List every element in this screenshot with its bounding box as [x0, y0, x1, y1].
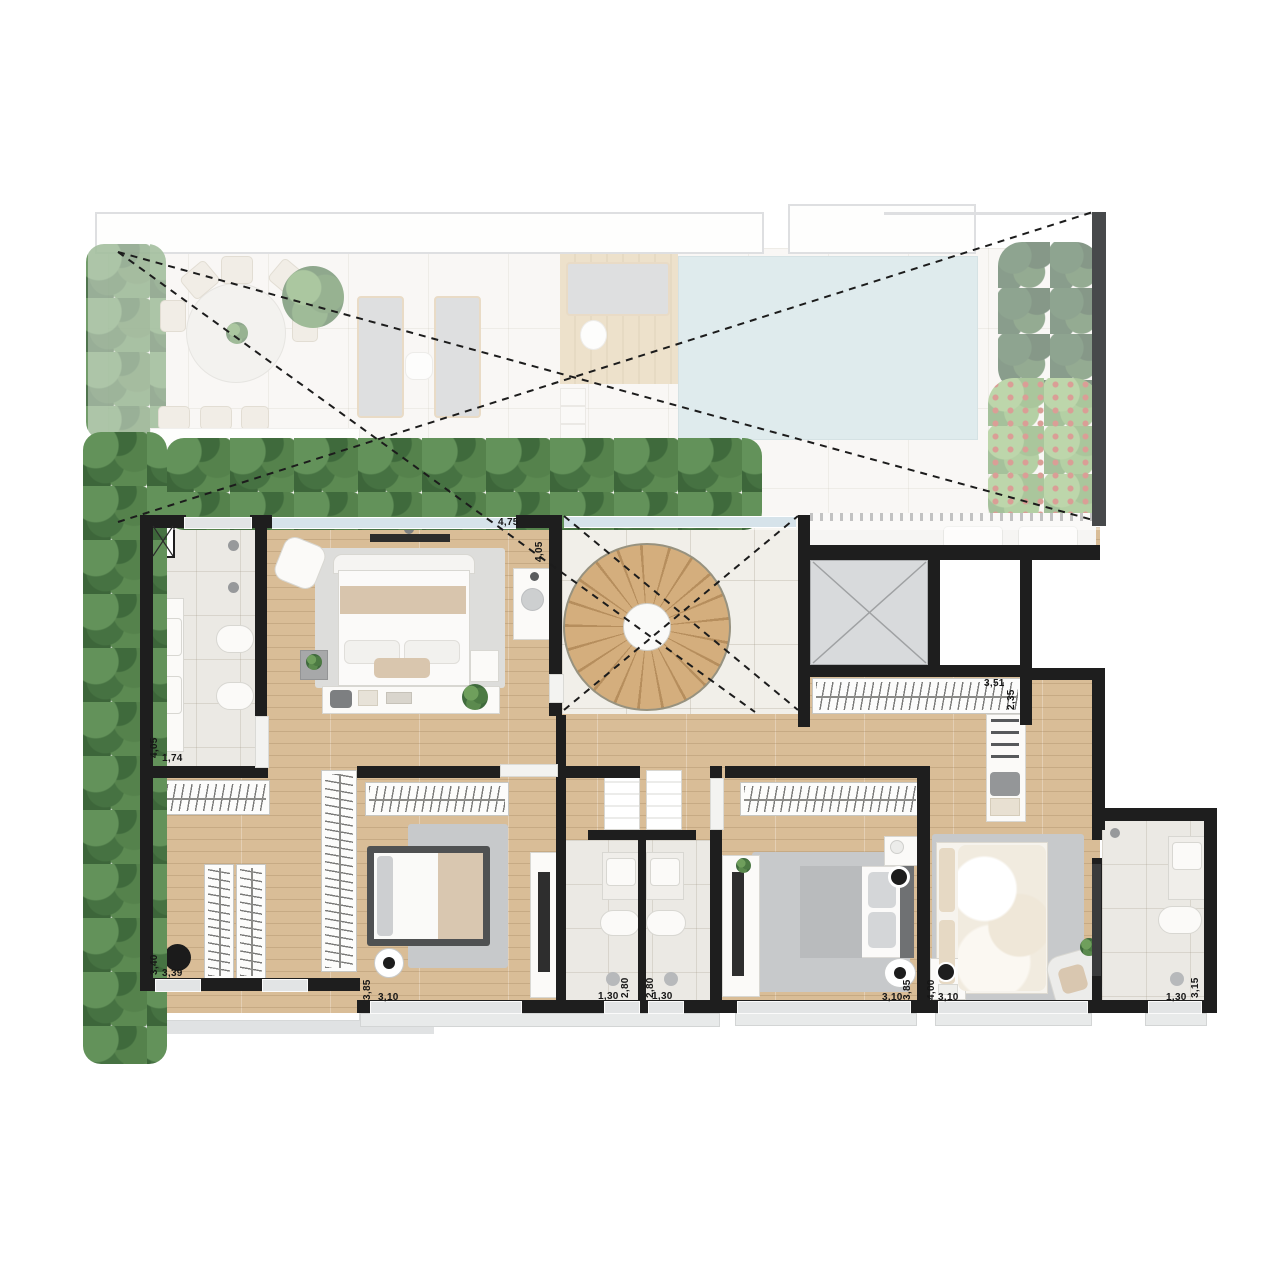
- dim-masterbath-width: 1,74: [162, 753, 183, 764]
- bed-blanket: [800, 866, 862, 958]
- toilet: [646, 910, 686, 936]
- wardrobe-rack: [365, 782, 509, 816]
- dining-chair: [160, 300, 186, 332]
- side-table: [405, 352, 433, 380]
- terrace-parapet-line: [884, 212, 1094, 215]
- tv: [538, 872, 550, 972]
- sun-lounger: [434, 296, 481, 418]
- sun-lounger: [357, 296, 404, 418]
- dining-chair: [241, 406, 269, 430]
- nightstand-plant: [306, 654, 322, 670]
- wall-suite4bath-top: [1092, 808, 1217, 821]
- spiral-staircase: [563, 543, 731, 711]
- tv: [370, 534, 450, 542]
- window-sill: [1145, 1013, 1207, 1026]
- deck-steps: [560, 388, 586, 442]
- closet-window: [262, 979, 308, 992]
- dim-closet-width: 3,39: [162, 968, 183, 979]
- wall-shaft-right: [1020, 553, 1032, 677]
- round-stool-center: [894, 967, 906, 979]
- dim-suite4-width: 3,10: [938, 992, 959, 1003]
- dim-suite4bath-height: 3,15: [1190, 977, 1201, 998]
- shower-drain: [1170, 972, 1184, 986]
- terrace-shrub: [998, 242, 1100, 392]
- bed-pillow: [377, 856, 393, 936]
- wall-bedroom2-top: [357, 766, 500, 778]
- deck-side-table: [580, 320, 607, 350]
- potted-plant: [282, 266, 344, 328]
- tv-panel: [1092, 864, 1101, 976]
- speaker: [936, 962, 956, 982]
- dim-master-height: 4,05: [534, 541, 545, 562]
- speaker: [888, 866, 910, 888]
- dim-closet-height: 3,40: [149, 954, 160, 975]
- dim-suite4closet-height: 2,35: [1006, 689, 1017, 710]
- toilet: [216, 625, 254, 653]
- tv: [732, 872, 744, 976]
- wall-bed3-bed4: [917, 766, 930, 1013]
- dim-bathroom2-height: 2,80: [620, 977, 631, 998]
- wall-suite4-closet-right: [1020, 677, 1032, 725]
- wall-elevator-bottom: [808, 665, 1032, 677]
- washbasin: [606, 858, 636, 886]
- bed-pillow: [939, 848, 955, 912]
- bed-duvet: [958, 845, 1046, 991]
- master-sliding-door: [272, 517, 516, 529]
- dim-bedroom2-height: 3,85: [362, 979, 373, 1000]
- window-sill: [360, 1013, 720, 1027]
- terrace-hedge-left: [86, 244, 166, 440]
- window-sill: [735, 1013, 917, 1026]
- toilet: [600, 910, 640, 936]
- wall: [250, 515, 272, 528]
- dim-bedroom2-width: 3,10: [378, 992, 399, 1003]
- floor-speaker-cone: [383, 957, 395, 969]
- wall-shaft-divider: [928, 545, 940, 677]
- dining-chair: [221, 256, 253, 284]
- dim-bathroom2-width: 1,30: [598, 991, 619, 1002]
- wall-masterbath-bottom: [147, 766, 268, 778]
- service-shaft: [938, 560, 1022, 667]
- bathroom3-window: [648, 1001, 684, 1014]
- dim-bathroom3-width: 1,30: [652, 991, 673, 1002]
- open-area: [1032, 560, 1105, 668]
- terrace-parapet: [95, 212, 764, 254]
- bed-cushion: [374, 658, 430, 678]
- dining-chair: [158, 406, 190, 430]
- dim-bedroom3-width: 3,10: [882, 992, 903, 1003]
- bed-blanket: [438, 853, 483, 939]
- wall-suite4bath-right: [1204, 808, 1217, 1013]
- terrace-right-wall: [1092, 212, 1106, 526]
- wardrobe-rack: [321, 770, 357, 972]
- shelf-basket: [990, 772, 1020, 796]
- desk-accessory: [530, 572, 539, 581]
- wardrobe-rack: [163, 780, 270, 815]
- bed-pillow: [868, 912, 896, 948]
- bedroom3-door: [710, 778, 724, 830]
- dim-masterbath-height: 4,05: [149, 737, 160, 758]
- dim-master-width: 4,75: [498, 517, 519, 528]
- dim-suite4closet-width: 3,51: [984, 678, 1005, 689]
- dim-suite4bath-width: 1,30: [1166, 992, 1187, 1003]
- master-door: [549, 674, 564, 703]
- wall-elevator-top: [808, 545, 1100, 560]
- desk-chair: [521, 588, 544, 611]
- wall-masterbath-right: [255, 528, 267, 716]
- shelf-shoes: [991, 719, 1019, 767]
- wardrobe-rack: [740, 782, 920, 816]
- wall-suite4-right: [1092, 668, 1105, 830]
- stairhall-glass: [564, 516, 796, 528]
- wall-bathblock-left: [556, 715, 566, 1013]
- floor-plan: 4,75 4,05 4,05 1,74 3,40 3,39 3,85 3,10 …: [0, 0, 1280, 1280]
- books: [386, 692, 412, 704]
- dim-bedroom3-height: 3,85: [902, 979, 913, 1000]
- shoe-cabinet: [646, 770, 682, 830]
- wall-suite4bath-left-jamb: [1092, 830, 1102, 840]
- washbasin: [650, 858, 680, 886]
- wall-bedroom3-top: [725, 766, 925, 778]
- pouf: [164, 944, 191, 971]
- bag: [330, 690, 352, 708]
- bathroom2-window: [604, 1001, 640, 1014]
- shower-head: [228, 582, 239, 593]
- desk-plant: [736, 858, 751, 873]
- basket: [358, 690, 378, 706]
- shower-drain: [606, 972, 620, 986]
- bench-plant: [462, 684, 488, 710]
- deck-lounger: [566, 262, 670, 316]
- wardrobe-rack: [236, 864, 266, 980]
- wardrobe-rack: [204, 864, 234, 980]
- shower-drain: [664, 972, 678, 986]
- shoe-cabinet: [604, 770, 640, 830]
- closet-window: [155, 979, 201, 992]
- table-lamp: [890, 840, 904, 854]
- washbasin: [1172, 842, 1202, 870]
- bedroom2-door: [500, 764, 558, 777]
- dining-chair: [200, 406, 232, 430]
- shower-head: [228, 540, 239, 551]
- masterbath-door: [255, 716, 269, 768]
- dim-suite4-height: 4,00: [926, 979, 937, 1000]
- masterbath-window: [184, 517, 252, 529]
- toilet: [1158, 906, 1202, 934]
- deck-edge-ticks: [810, 513, 1092, 521]
- nightstand: [470, 650, 499, 682]
- shower-head: [1110, 828, 1120, 838]
- bidet: [216, 682, 254, 710]
- elevator-shaft: [810, 560, 928, 665]
- bed-blanket: [340, 586, 466, 614]
- wall-master-right: [549, 515, 562, 675]
- swimming-pool: [678, 256, 978, 440]
- shelf-blanket: [990, 798, 1020, 816]
- window-sill: [935, 1013, 1092, 1026]
- flowering-shrub: [988, 378, 1100, 530]
- wall-vestibule-top: [556, 766, 640, 778]
- table-plant: [226, 322, 248, 344]
- bedroom4-window: [938, 1001, 1088, 1014]
